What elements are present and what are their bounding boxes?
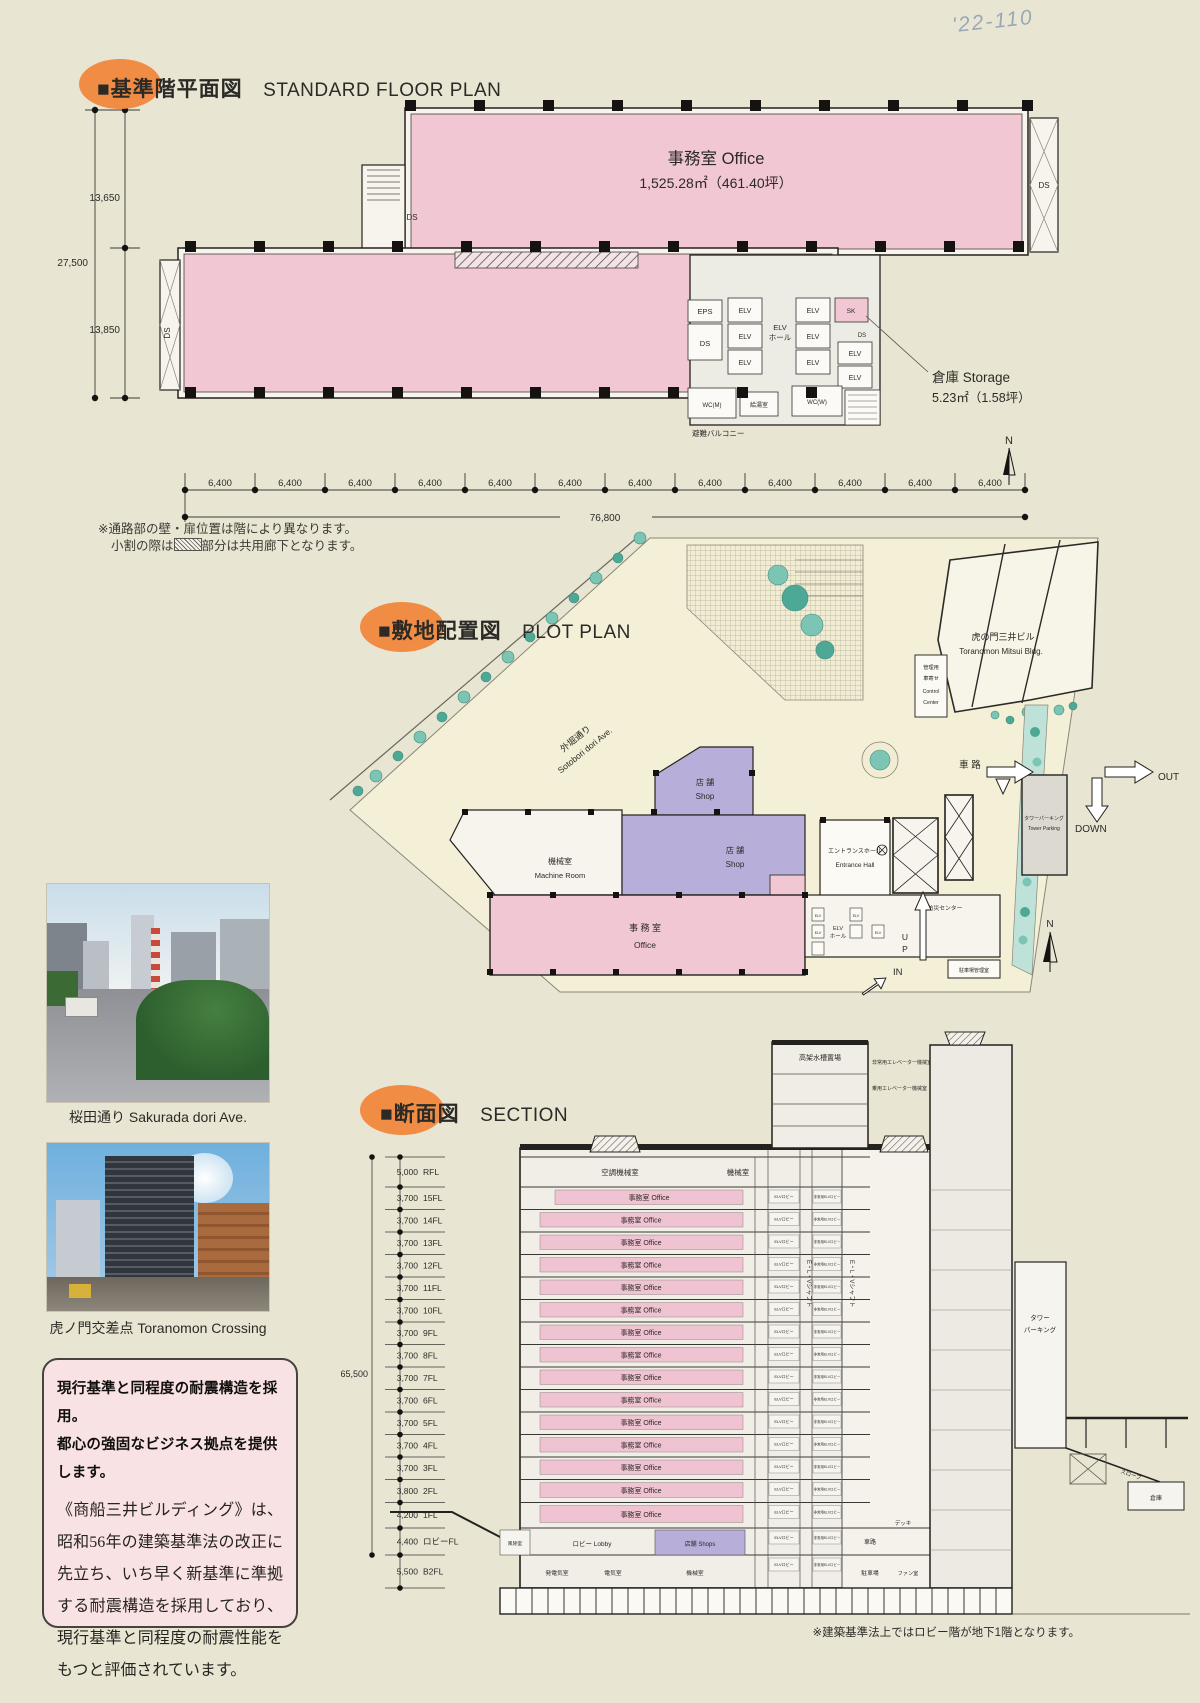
entrance-label-jp: エントランスホール: [828, 848, 882, 855]
elv-label: ELV: [739, 334, 752, 341]
roof-vent: [880, 1136, 928, 1152]
tree-icon: [569, 593, 579, 603]
svg-text:9FL: 9FL: [423, 1328, 438, 1338]
plan-section-title: ■基準階平面図 STANDARD FLOOR PLAN: [97, 73, 501, 103]
tree-icon: [458, 691, 470, 703]
shop-label-en: Shop: [726, 860, 745, 869]
tree-icon: [414, 731, 426, 743]
generator-room-label: 発電気室: [545, 1569, 568, 1577]
emer-elv-lobby-label: 非常用ELVロビー: [814, 1239, 841, 1244]
left-dimension-dots: [92, 107, 128, 401]
svg-text:3,700: 3,700: [397, 1441, 419, 1451]
tree-icon: [393, 751, 403, 761]
message-body: 《商船三井ビルディング》は、昭和56年の建築基準法の改正に先立ち、いち早く新基準…: [57, 1495, 283, 1687]
shops-label: 店舗 Shops: [685, 1540, 716, 1548]
emergency-elv-lobby-column: 非常用ELVロビー 非常用ELVロビー 非常用ELVロビー 非常用ELVロビー …: [813, 1190, 841, 1571]
svg-text:6,400: 6,400: [348, 478, 372, 489]
svg-text:3,700: 3,700: [397, 1216, 419, 1226]
svg-text:事務室 Office: 事務室 Office: [620, 1261, 661, 1270]
seismic-message-box: 現行基準と同程度の耐震構造を採用。 都心の強固なビジネス拠点を提供します。 《商…: [42, 1358, 298, 1628]
kyutou-label: 給湯室: [750, 401, 768, 409]
emer-elv-lobby-label: 非常用ELVロビー: [814, 1397, 841, 1402]
svg-text:13FL: 13FL: [423, 1238, 443, 1248]
shared-corridor-hatch: [455, 252, 638, 268]
office-floor-bar: 事務室 Office: [540, 1213, 743, 1228]
neighbor-label-jp: 虎の門三井ビル: [971, 631, 1034, 642]
floor-plan-drawing: DS DS DS EPS DS: [40, 90, 1150, 560]
elv-lobby-label: ELVロビー: [774, 1216, 793, 1222]
office-floor-bar: 事務室 Office: [540, 1506, 743, 1523]
ds-label: DS: [858, 333, 866, 339]
plot-section-title: ■敷地配置図 PLOT PLAN: [378, 615, 631, 645]
wc-men-label: WC(M): [703, 403, 722, 409]
photo-tower: [105, 1156, 194, 1284]
emer-elv-lobby-label: 非常用ELVロビー: [814, 1307, 841, 1312]
control-label: 管理用: [923, 663, 939, 671]
emer-elv-lobby-label: 非常用ELVロビー: [814, 1284, 841, 1289]
elv-hall-label: ELV: [833, 926, 843, 932]
north-arrow: N: [1003, 435, 1015, 485]
tree-icon: [801, 614, 823, 636]
core-block: EPS DS ELV ELV ELV ELV ホール ELV ELV ELV: [688, 255, 880, 425]
down-arrow: [1086, 778, 1108, 822]
tree-icon: [1033, 758, 1042, 767]
office-floor-bar: 事務室 Office: [540, 1460, 743, 1475]
svg-text:6,400: 6,400: [558, 478, 582, 489]
driveway-label: 車路: [864, 1538, 876, 1546]
svg-text:6,400: 6,400: [278, 478, 302, 489]
north-label: N: [1005, 435, 1013, 447]
control-label: Center: [923, 700, 939, 706]
elv-lobby-label: ELVロビー: [774, 1509, 793, 1515]
office-floor-bar: 事務室 Office: [540, 1415, 743, 1430]
elv-label: ELV: [807, 360, 820, 367]
message-headline2: 都心の強固なビジネス拠点を提供します。: [57, 1431, 283, 1487]
tree-icon: [782, 585, 808, 611]
tree-icon: [1019, 936, 1028, 945]
svg-text:6,400: 6,400: [488, 478, 512, 489]
elv-lobby-label: ELVロビー: [774, 1193, 793, 1199]
photo2-caption: 虎ノ門交差点 Toranomon Crossing: [18, 1318, 298, 1338]
svg-text:4,400: 4,400: [397, 1537, 419, 1547]
office-floor-bar: 事務室 Office: [540, 1438, 743, 1453]
tree-icon: [1023, 878, 1032, 887]
svg-text:11FL: 11FL: [423, 1283, 442, 1293]
elv-label: ELV: [815, 914, 822, 918]
svg-text:事務室 Office: 事務室 Office: [620, 1418, 661, 1427]
photo-hedge: [136, 980, 269, 1080]
svg-text:3,700: 3,700: [397, 1463, 419, 1473]
svg-text:3,700: 3,700: [397, 1283, 419, 1293]
tree-icon: [437, 712, 447, 722]
section-title-jp: ■断面図: [380, 1103, 460, 1126]
entrance-label-en: Entrance Hall: [835, 862, 875, 869]
sk-label: SK: [847, 308, 856, 315]
electrical-room-label: 電気室: [604, 1569, 622, 1577]
svg-text:3,800: 3,800: [397, 1486, 419, 1496]
photo-building: [198, 1203, 269, 1284]
tree-icon: [816, 641, 834, 659]
svg-text:3,700: 3,700: [397, 1373, 419, 1383]
svg-text:事務室 Office: 事務室 Office: [620, 1396, 661, 1405]
elv-label: ELV: [807, 308, 820, 315]
elv-bank-right: ELV ELV ELV: [796, 298, 830, 374]
in-label: IN: [893, 967, 903, 978]
emer-elv-lobby-label: 非常用ELVロビー: [814, 1442, 841, 1447]
svg-text:RFL: RFL: [423, 1167, 439, 1177]
emer-elv-lobby-label: 非常用ELVロビー: [814, 1262, 841, 1267]
elv-label: ELV: [849, 351, 862, 358]
section-drawing: 65,500 5,000RFL 3,70015FL 3,70014FL 3,70…: [330, 1030, 1190, 1690]
elv-hall-label: ホール: [830, 933, 847, 940]
storage-name-label: 倉庫 Storage: [932, 370, 1010, 385]
windbreak-label: 風除室: [508, 1540, 523, 1547]
tree-icon: [613, 553, 623, 563]
out-arrow: [1105, 761, 1153, 783]
svg-text:事務室 Office: 事務室 Office: [628, 1193, 669, 1202]
parking-office: 駐車場管理室: [948, 960, 1000, 978]
lobby-label: ロビー Lobby: [572, 1539, 612, 1548]
svg-text:14FL: 14FL: [423, 1216, 443, 1226]
svg-text:10FL: 10FL: [423, 1306, 443, 1316]
office-name-label: 事務室 Office: [668, 149, 765, 168]
elv-bank-left: ELV ELV ELV: [728, 298, 762, 374]
office-floor-bar: 事務室 Office: [540, 1235, 743, 1250]
svg-text:3,700: 3,700: [397, 1261, 419, 1271]
svg-text:6,400: 6,400: [978, 478, 1002, 489]
svg-text:事務室 Office: 事務室 Office: [620, 1306, 661, 1315]
svg-text:3,700: 3,700: [397, 1238, 419, 1248]
elv-lobby-label: ELVロビー: [774, 1306, 793, 1312]
shop-2: 店 舗 Shop: [622, 815, 805, 895]
storage-area-label: 5.23㎡（1.58坪）: [932, 391, 1031, 405]
office-area-label: 1,525.28㎡（461.40坪）: [639, 175, 792, 191]
elv-lobby-label: ELVロビー: [774, 1238, 793, 1244]
photo1-caption: 桜田通り Sakurada dori Ave.: [18, 1107, 298, 1127]
svg-text:6,400: 6,400: [418, 478, 442, 489]
elv-hall-label: ELV: [773, 323, 787, 332]
emer-elv-lobby-label: 非常用ELVロビー: [814, 1329, 841, 1334]
shop-label-jp: 店 舗: [726, 845, 744, 855]
elv-hall-label: ホール: [769, 333, 792, 342]
elv-lobby-label: ELVロビー: [774, 1561, 793, 1567]
parking-office-label: 駐車場管理室: [959, 967, 989, 974]
section-section-title: ■断面図 SECTION: [380, 1098, 568, 1128]
machine-room-en: Machine Room: [535, 871, 585, 880]
brochure-page: '22-110 ■基準階平面図 STANDARD FLOOR PLAN DS D…: [0, 0, 1200, 1703]
svg-text:6,400: 6,400: [838, 478, 862, 489]
plan-title-jp: ■基準階平面図: [97, 78, 243, 101]
elv-label: ELV: [853, 914, 860, 918]
plan-note-line2: 小割の際は部分は共用廊下となります。: [98, 538, 362, 555]
water-tank-penthouse: 高架水槽置場: [772, 1040, 868, 1148]
control-label: Control: [923, 689, 940, 695]
elv-lobby-label: ELVロビー: [774, 1441, 793, 1447]
tree-icon: [370, 770, 382, 782]
plot-title-jp: ■敷地配置図: [378, 620, 502, 643]
bousai-center-label: 防災センター: [928, 904, 963, 912]
balcony-label: 避難バルコニー: [692, 428, 744, 438]
machine-room-label: 機械室: [727, 1167, 750, 1177]
neighbor-label-en: Toranomon Mitsui Bldg.: [959, 647, 1043, 656]
emer-elv-lobby-label: 非常用ELVロビー: [814, 1464, 841, 1469]
photo-toranomon-crossing: [47, 1143, 269, 1311]
tree-icon: [870, 750, 890, 770]
office-block: 事 務 室 Office: [490, 895, 805, 975]
up-label: P: [902, 944, 908, 954]
office-floor-bar: 事務室 Office: [540, 1348, 743, 1363]
svg-text:事務室 Office: 事務室 Office: [620, 1351, 661, 1360]
control-center: 管理用 車寄せ Control Center: [915, 655, 947, 717]
north-label: N: [1046, 919, 1053, 930]
svg-text:5,000: 5,000: [397, 1167, 419, 1177]
passenger-elv-machine-label: 乗用エレベーター機械室: [872, 1085, 927, 1092]
office-floor-bar: 事務室 Office: [540, 1370, 743, 1385]
round-plaza: [862, 742, 898, 778]
emer-elv-lobby-label: 非常用ELVロビー: [814, 1374, 841, 1379]
svg-text:15FL: 15FL: [423, 1193, 443, 1203]
fan-room-label: ファン室: [898, 1569, 919, 1577]
control-label: 車寄せ: [923, 674, 939, 682]
dim-left-upper: 13,650: [89, 193, 120, 204]
photo-building: [56, 1200, 100, 1284]
elv-lobby-label: ELVロビー: [774, 1373, 793, 1379]
svg-text:3,700: 3,700: [397, 1351, 419, 1361]
photo-building: [131, 915, 153, 998]
slope-line: [1066, 1448, 1160, 1482]
svg-text:6,400: 6,400: [698, 478, 722, 489]
elv-lobby-label: ELVロビー: [774, 1351, 793, 1357]
emergency-elv-machine-label: 非常用エレベーター機械室: [872, 1059, 932, 1066]
svg-text:5,500: 5,500: [397, 1567, 419, 1577]
tower-parking-jp: タワーパーキング: [1024, 815, 1064, 822]
svg-text:3,700: 3,700: [397, 1418, 419, 1428]
elv-lobby-label: ELVロビー: [774, 1486, 793, 1492]
photo-sakurada-dori: [47, 884, 269, 1102]
svg-text:3,700: 3,700: [397, 1396, 419, 1406]
elv-shaft-label: E・L・Vシャフト: [805, 1260, 812, 1307]
tree-icon: [1030, 727, 1040, 737]
svg-text:6FL: 6FL: [423, 1396, 438, 1406]
elv-shaft-label: E・L・Vシャフト: [848, 1260, 855, 1307]
svg-text:3,700: 3,700: [397, 1306, 419, 1316]
emer-elv-lobby-label: 非常用ELVロビー: [814, 1535, 841, 1540]
storage-annex-label: 倉庫: [1150, 1494, 1162, 1502]
photo-truck: [65, 997, 98, 1016]
emer-elv-lobby-label: 非常用ELVロビー: [814, 1419, 841, 1424]
emer-elv-lobby-label: 非常用ELVロビー: [814, 1510, 841, 1515]
ds-shaft-left: DS: [160, 260, 180, 390]
plan-note-line1: ※通路部の壁・扉位置は階により異なります。: [98, 521, 362, 538]
office-floor-bar: 事務室 Office: [540, 1258, 743, 1273]
parking-label: 駐車場: [861, 1569, 879, 1577]
svg-text:3,700: 3,700: [397, 1193, 419, 1203]
section-title-en: SECTION: [480, 1105, 568, 1126]
ds-label: DS: [163, 327, 172, 338]
tree-icon: [1069, 702, 1077, 710]
wc-women-label: WC(W): [807, 400, 827, 406]
total-height-label: 65,500: [340, 1369, 368, 1379]
machine-room-jp: 機械室: [548, 856, 572, 866]
svg-text:12FL: 12FL: [423, 1261, 443, 1271]
shared-corridor-hatch-swatch: [174, 538, 202, 551]
floor-scale-labels: 5,000RFL 3,70015FL 3,70014FL 3,70013FL 3…: [397, 1167, 459, 1577]
svg-text:4FL: 4FL: [423, 1441, 438, 1451]
tower-parking-label: パーキング: [1024, 1325, 1057, 1334]
elv-label: ELV: [739, 360, 752, 367]
down-label: DOWN: [1075, 824, 1107, 835]
section-note: ※建築基準法上ではロビー階が地下1階となります。: [812, 1625, 1080, 1639]
office-floor-bar: 事務室 Office: [540, 1325, 743, 1340]
tower-parking-annex: タワー パーキング スロープ 倉庫: [1015, 1262, 1188, 1510]
neighbor-building: 虎の門三井ビル Toranomon Mitsui Bldg.: [938, 540, 1098, 712]
emer-elv-lobby-label: 非常用ELVロビー: [814, 1217, 841, 1222]
slope-label: スロープ: [1119, 1468, 1142, 1482]
office-floor-bar: 事務室 Office: [555, 1190, 743, 1205]
tree-icon: [634, 532, 646, 544]
svg-text:7FL: 7FL: [423, 1373, 438, 1383]
dim-left-lower: 13,850: [89, 325, 120, 336]
foundation-band: [500, 1588, 1190, 1614]
office-floor-bar: 事務室 Office: [540, 1280, 743, 1295]
svg-text:事務室 Office: 事務室 Office: [620, 1328, 661, 1337]
svg-text:事務室 Office: 事務室 Office: [620, 1283, 661, 1292]
shop-label-jp: 店 舗: [696, 777, 714, 787]
svg-text:事務室 Office: 事務室 Office: [620, 1441, 661, 1450]
tree-icon: [481, 672, 491, 682]
svg-text:事務室 Office: 事務室 Office: [620, 1238, 661, 1247]
tower-parking-en: Tower Parking: [1028, 826, 1060, 832]
left-dimension-chain: [85, 110, 140, 398]
office-label-jp: 事 務 室: [629, 922, 661, 933]
emer-elv-lobby-label: 非常用ELVロビー: [814, 1194, 841, 1199]
svg-text:6,400: 6,400: [208, 478, 232, 489]
ac-machine-room-label: 空調機械室: [601, 1167, 639, 1177]
dim-left-total: 27,500: [57, 258, 88, 269]
water-tank-label: 高架水槽置場: [799, 1053, 841, 1062]
tree-icon: [1020, 907, 1030, 917]
elv-label: ELV: [807, 334, 820, 341]
ds-label: DS: [700, 339, 710, 348]
svg-text:3,700: 3,700: [397, 1328, 419, 1338]
elv-lobby-label: ELVロビー: [774, 1261, 793, 1267]
office-floor-bar: 事務室 Office: [540, 1393, 743, 1408]
svg-text:ロビーFL: ロビーFL: [423, 1537, 459, 1547]
message-headline1: 現行基準と同程度の耐震構造を採用。: [57, 1375, 283, 1431]
svg-text:事務室 Office: 事務室 Office: [620, 1216, 661, 1225]
svg-text:5FL: 5FL: [423, 1418, 438, 1428]
svg-text:事務室 Office: 事務室 Office: [620, 1510, 661, 1519]
handwritten-mark: '22-110: [951, 6, 1035, 38]
svg-text:事務室 Office: 事務室 Office: [620, 1463, 661, 1472]
svg-text:B2FL: B2FL: [423, 1567, 444, 1577]
elv-lobby-column: ELVロビー ELVロビー ELVロビー ELVロビー ELVロビー ELVロビ…: [769, 1190, 799, 1571]
elv-lobby-label: ELVロビー: [774, 1396, 793, 1402]
north-arrow: N: [1043, 919, 1057, 972]
tower-parking-label: タワー: [1030, 1313, 1050, 1322]
driveway-label: 車 路: [959, 759, 981, 771]
elv-label: ELV: [849, 375, 862, 382]
elv-label: ELV: [875, 931, 882, 935]
emer-elv-lobby-label: 非常用ELVロビー: [814, 1352, 841, 1357]
svg-text:6,400: 6,400: [768, 478, 792, 489]
tree-icon: [1054, 705, 1064, 715]
up-label: U: [902, 932, 908, 942]
tree-icon: [590, 572, 602, 584]
elv-lobby-label: ELVロビー: [774, 1534, 793, 1540]
deck-label: デッキ: [895, 1519, 912, 1527]
roof-vent: [590, 1136, 640, 1152]
svg-text:2FL: 2FL: [423, 1486, 438, 1496]
elv-label: ELV: [739, 308, 752, 315]
office-floors: 事務室 Office 事務室 Office 事務室 Office 事務室 Off…: [540, 1190, 743, 1523]
emer-elv-lobby-label: 非常用ELVロビー: [814, 1562, 841, 1567]
tree-icon: [502, 651, 514, 663]
elv-label: ELV: [815, 931, 822, 935]
elv-lobby-label: ELVロビー: [774, 1418, 793, 1424]
ds-shaft-right: DS: [1030, 118, 1058, 252]
svg-text:8FL: 8FL: [423, 1351, 438, 1361]
ds-label: DS: [1038, 181, 1049, 190]
entrance-hall: エントランスホール Entrance Hall: [820, 820, 890, 900]
elv-lobby-label: ELVロビー: [774, 1328, 793, 1334]
svg-text:6,400: 6,400: [628, 478, 652, 489]
svg-text:3FL: 3FL: [423, 1463, 438, 1473]
tower-parking: タワーパーキング Tower Parking: [1022, 775, 1067, 875]
elv-lobby-label: ELVロビー: [774, 1463, 793, 1469]
office-floor-bar: 事務室 Office: [540, 1303, 743, 1318]
office-label-en: Office: [634, 940, 656, 950]
tree-icon: [768, 565, 788, 585]
roof-vent: [945, 1032, 985, 1045]
machine-room-label: 機械室: [686, 1569, 704, 1577]
shop-label-en: Shop: [696, 792, 715, 801]
plot-plan-drawing: 外堀通り Sotobori dori Ave. 虎の門三井ビル Toranomo…: [315, 520, 1195, 1010]
svg-text:6,400: 6,400: [908, 478, 932, 489]
right-void: [842, 1148, 930, 1588]
tree-icon: [1006, 716, 1014, 724]
plot-title-en: PLOT PLAN: [522, 622, 631, 643]
elv-lobby-label: ELVロビー: [774, 1283, 793, 1289]
svg-text:事務室 Office: 事務室 Office: [620, 1373, 661, 1382]
svg-text:事務室 Office: 事務室 Office: [620, 1486, 661, 1495]
out-label: OUT: [1158, 772, 1179, 783]
right-tower: [930, 1032, 1012, 1588]
photo-taxi: [69, 1284, 91, 1297]
tree-icon: [353, 786, 363, 796]
emer-elv-lobby-label: 非常用ELVロビー: [814, 1487, 841, 1492]
eps-label: EPS: [697, 307, 712, 316]
office-floor-bar: 事務室 Office: [540, 1483, 743, 1498]
ds-label: DS: [406, 213, 417, 222]
plan-notes: ※通路部の壁・扉位置は階により異なります。 小割の際は部分は共用廊下となります。: [98, 521, 362, 555]
plan-title-en: STANDARD FLOOR PLAN: [263, 80, 501, 101]
tree-icon: [991, 711, 999, 719]
